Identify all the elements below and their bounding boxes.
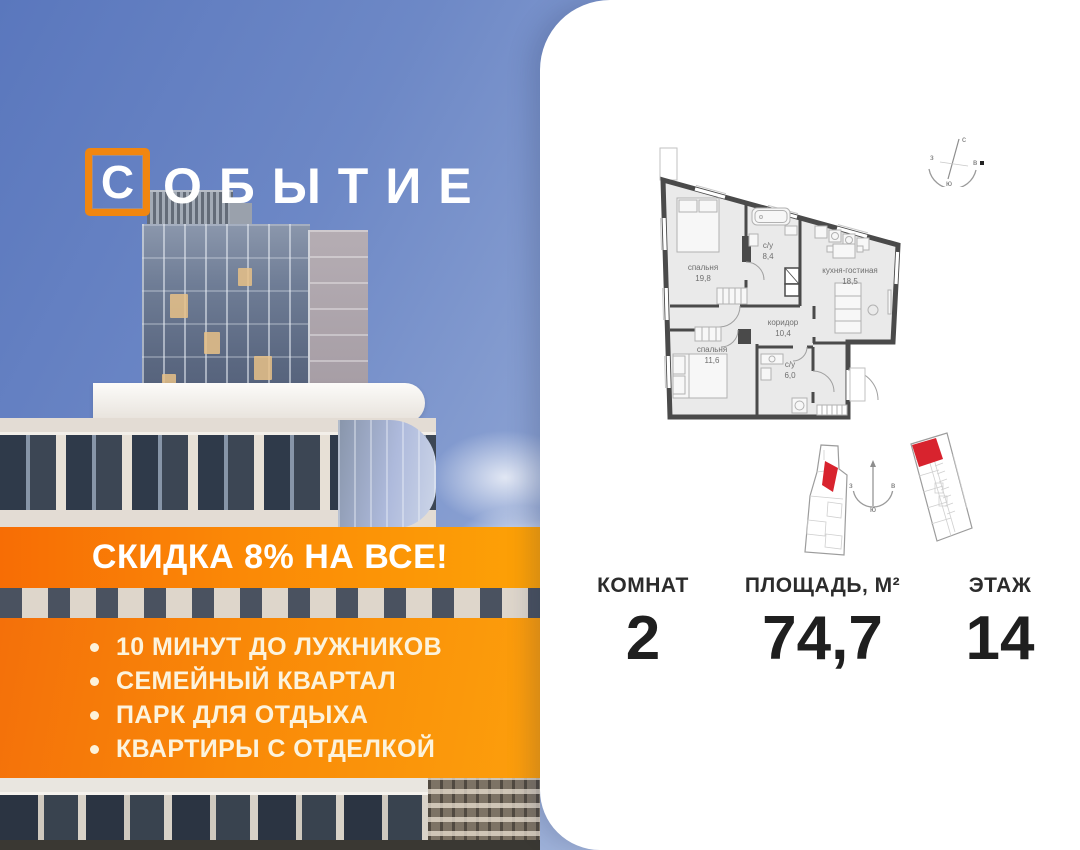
stat-value: 14	[935, 606, 1065, 671]
room-area: 11,6	[705, 356, 721, 365]
stat-floor: ЭТАЖ 14	[935, 574, 1065, 671]
stat-label: КОМНАТ	[578, 574, 708, 598]
floorplate-diagram	[895, 428, 980, 550]
room-area: 10,4	[775, 329, 791, 338]
bullet-dot-icon	[90, 711, 99, 720]
room-area: 8,4	[762, 252, 774, 261]
stat-rooms: КОМНАТ 2	[578, 574, 708, 671]
stat-label: ПЛОЩАДЬ, М²	[720, 574, 925, 598]
room-label: спальня	[697, 345, 727, 354]
info-card: с ю з в	[540, 0, 1080, 850]
room-label: коридор	[768, 318, 799, 327]
room-area: 18,5	[842, 277, 858, 286]
room-label: кухня-гостиная	[822, 266, 878, 275]
compass-icon: з в ю	[848, 458, 898, 513]
feature-text: СЕМЕЙНЫЙ КВАРТАЛ	[116, 667, 396, 696]
stat-value: 2	[578, 606, 708, 671]
podium-curved-corner	[338, 420, 436, 528]
feature-text: КВАРТИРЫ С ОТДЕЛКОЙ	[116, 735, 435, 764]
podium-roof	[93, 383, 425, 423]
feature-text: 10 МИНУТ ДО ЛУЖНИКОВ	[116, 633, 442, 662]
bullet-dot-icon	[90, 677, 99, 686]
street-base	[0, 840, 540, 850]
bullet-dot-icon	[90, 643, 99, 652]
room-area: 19,8	[695, 274, 711, 283]
facade-strip	[0, 588, 540, 618]
list-item: 10 МИНУТ ДО ЛУЖНИКОВ	[90, 632, 540, 663]
discount-banner: СКИДКА 8% НА ВСЕ!	[0, 527, 540, 588]
list-item: СЕМЕЙНЫЙ КВАРТАЛ	[90, 666, 540, 697]
compass-west-label: з	[849, 481, 853, 490]
floor-plan: спальня 19,8 с/у 8,4 кухня-гостиная 18,5…	[645, 140, 1055, 440]
storefront-glass	[0, 792, 430, 840]
feature-text: ПАРК ДЛЯ ОТДЫХА	[116, 701, 368, 730]
features-list: 10 МИНУТ ДО ЛУЖНИКОВ СЕМЕЙНЫЙ КВАРТАЛ ПА…	[90, 629, 540, 768]
logo-boxed-letter: С	[101, 159, 134, 205]
room-label: с/у	[785, 360, 795, 369]
list-item: КВАРТИРЫ С ОТДЕЛКОЙ	[90, 734, 540, 765]
stat-area: ПЛОЩАДЬ, М² 74,7	[720, 574, 925, 671]
list-item: ПАРК ДЛЯ ОТДЫХА	[90, 700, 540, 731]
room-label: с/у	[763, 241, 773, 250]
stat-label: ЭТАЖ	[935, 574, 1065, 598]
room-area: 6,0	[784, 371, 796, 380]
bullet-dot-icon	[90, 745, 99, 754]
features-block: 10 МИНУТ ДО ЛУЖНИКОВ СЕМЕЙНЫЙ КВАРТАЛ ПА…	[0, 618, 540, 778]
street-level-facade	[0, 778, 540, 850]
logo-wordmark: ОБЫТИЕ	[163, 157, 489, 215]
stat-value: 74,7	[720, 606, 925, 671]
room-label: спальня	[688, 263, 718, 272]
compass-south-label: ю	[870, 505, 876, 513]
discount-banner-text: СКИДКА 8% НА ВСЕ!	[92, 538, 448, 577]
logo-letter-box: С	[85, 148, 150, 216]
ad-canvas: С ОБЫТИЕ СКИДКА 8% НА ВСЕ! 10 МИНУТ ДО Л…	[0, 0, 1080, 850]
